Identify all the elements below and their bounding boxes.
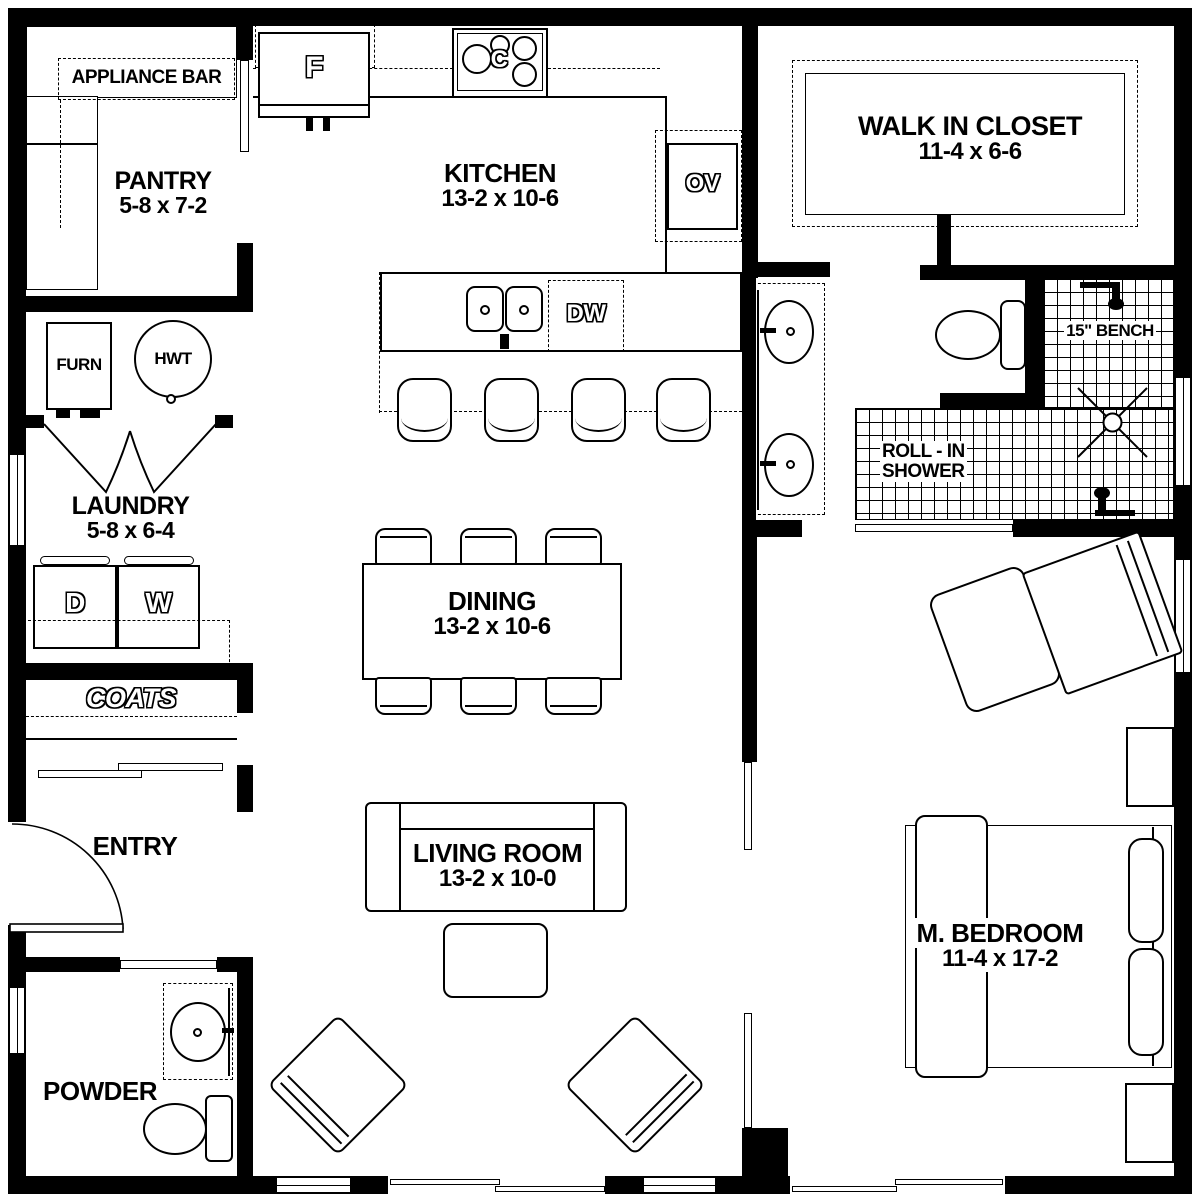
laundry-label: LAUNDRY 5-8 x 6-4 — [48, 493, 213, 543]
dryer-label: D — [33, 588, 117, 617]
shelf-dashed — [60, 100, 61, 228]
wall — [237, 663, 253, 713]
bar-stool — [397, 378, 452, 442]
wall — [8, 296, 253, 312]
sink-drain — [193, 1028, 202, 1037]
wall — [1025, 278, 1043, 408]
dryer-lid — [40, 556, 110, 565]
toilet-bowl — [935, 310, 1001, 360]
bypass-door — [118, 763, 223, 771]
chair-cushion-line — [632, 1081, 694, 1143]
bench-text: 15" BENCH — [1064, 321, 1156, 340]
roll-in-shower-label: ROLL - IN SHOWER — [880, 442, 1040, 482]
window — [1174, 560, 1192, 672]
dining-chair — [545, 528, 602, 566]
fridge-foot — [323, 118, 330, 131]
entry-door-opening — [8, 822, 26, 925]
coats-letters: COATS — [86, 683, 176, 713]
pocket-door — [744, 762, 752, 850]
sofa-back — [401, 828, 593, 830]
pocket-door — [240, 60, 249, 152]
furnace-letters: FURN — [56, 355, 101, 374]
room-name: POWDER — [43, 1076, 157, 1106]
closet-shelf-edge — [26, 738, 237, 740]
window — [277, 1176, 350, 1194]
wall — [237, 26, 253, 60]
coffee-table — [443, 923, 548, 998]
master-bedroom-label: M. BEDROOM 11-4 x 17-2 — [895, 920, 1105, 972]
pocket-door — [120, 960, 217, 969]
wall — [742, 520, 802, 537]
washer-letter: W — [146, 587, 172, 618]
room-name: LIVING ROOM — [400, 840, 595, 867]
fridge-letter: F — [305, 51, 323, 84]
water-heater-label: HWT — [134, 350, 212, 368]
laundry-counter-dashed — [23, 620, 230, 667]
washer-label: W — [117, 588, 200, 617]
wall — [237, 957, 253, 1178]
sink-drain — [786, 460, 795, 469]
wall — [742, 26, 758, 278]
sink-drain — [480, 305, 490, 315]
armchair — [267, 1014, 408, 1155]
room-dims: 5-8 x 7-2 — [83, 194, 243, 218]
dining-chair — [545, 677, 602, 715]
nightstand — [1125, 1083, 1174, 1163]
sink-faucet — [760, 328, 776, 333]
sink-faucet — [222, 1028, 234, 1033]
dining-chair — [375, 528, 432, 566]
wall — [742, 537, 757, 762]
room-name: LAUNDRY — [48, 493, 213, 519]
vanity-edge — [757, 290, 759, 510]
room-dims: 5-8 x 6-4 — [48, 519, 213, 543]
sink-drain — [786, 327, 795, 336]
toilet-tank — [1000, 300, 1026, 370]
pocket-door — [744, 1013, 752, 1128]
dining-chair — [375, 677, 432, 715]
walk-in-closet-label: WALK IN CLOSET 11-4 x 6-6 — [840, 112, 1100, 165]
bifold-door — [44, 424, 216, 492]
sliding-door — [495, 1186, 605, 1192]
window — [644, 1176, 715, 1194]
closet-rod-dashed — [26, 716, 237, 717]
shower-curb — [855, 524, 1013, 532]
bar-stool — [571, 378, 626, 442]
sink-faucet — [500, 334, 509, 349]
appliance-bar-text: APPLIANCE BAR — [72, 67, 222, 88]
shower-bench-tile — [1043, 278, 1174, 408]
pillow — [1128, 838, 1164, 943]
room-name: PANTRY — [83, 168, 243, 194]
window — [8, 988, 26, 1053]
fridge-foot — [306, 118, 313, 131]
appliance-bar-label: APPLIANCE BAR — [58, 68, 235, 88]
furnace-foot — [56, 410, 70, 418]
armchair — [564, 1014, 705, 1155]
entry-label: ENTRY — [55, 833, 215, 860]
sliding-door — [390, 1179, 500, 1185]
wall — [742, 262, 830, 277]
wall — [8, 957, 120, 972]
shower-head — [1094, 487, 1110, 499]
wall — [742, 1128, 788, 1178]
wall — [237, 243, 253, 298]
bypass-door — [38, 770, 142, 778]
dining-chair — [460, 528, 517, 566]
dishwasher-label: DW — [548, 302, 624, 327]
toilet-bowl — [143, 1103, 207, 1155]
toilet-tank — [205, 1095, 233, 1162]
entry-door-leaf — [10, 924, 123, 932]
kitchen-label: KITCHEN 13-2 x 10-6 — [410, 160, 590, 212]
island-overhang-dashed — [379, 272, 380, 413]
room-name: M. BEDROOM — [895, 920, 1105, 947]
sliding-door — [895, 1179, 1003, 1185]
fridge-seam — [258, 104, 370, 106]
burner — [512, 36, 537, 61]
nightstand — [1126, 727, 1174, 807]
counter-divider — [26, 143, 98, 145]
wall — [237, 765, 253, 812]
dining-label: DINING 13-2 x 10-6 — [407, 588, 577, 640]
bar-stool — [656, 378, 711, 442]
shower-text-1: ROLL - IN — [880, 441, 967, 462]
shower-text-2: SHOWER — [880, 461, 967, 482]
water-heater-letters: HWT — [154, 349, 191, 368]
cooktop-letter: C — [491, 46, 508, 73]
chair-back-line — [1116, 545, 1158, 657]
room-name: KITCHEN — [410, 160, 590, 187]
room-dims: 11-4 x 17-2 — [895, 947, 1105, 972]
powder-label: POWDER — [30, 1078, 170, 1105]
oven-label: OV — [667, 172, 738, 197]
sink-drain — [519, 305, 529, 315]
oven-letters: OV — [686, 170, 720, 197]
upper-cabinet-dashed — [548, 68, 660, 69]
bar-stool — [484, 378, 539, 442]
wall-top — [8, 8, 1192, 26]
shower-head — [1098, 498, 1106, 511]
pillow — [1128, 948, 1164, 1056]
sink-faucet — [760, 461, 776, 466]
washer-lid — [124, 556, 194, 565]
burner — [512, 62, 537, 87]
chair-cushion-line — [625, 1074, 687, 1136]
door-stub — [26, 415, 44, 428]
room-name: ENTRY — [93, 831, 178, 861]
room-dims: 11-4 x 6-6 — [840, 140, 1100, 165]
bench-label: 15" BENCH — [1050, 322, 1170, 340]
dishwasher-letters: DW — [567, 300, 606, 327]
room-name: WALK IN CLOSET — [856, 112, 1084, 140]
dining-chair — [460, 677, 517, 715]
room-name: DINING — [407, 588, 577, 615]
floor-plan: APPLIANCE BAR PANTRY 5-8 x 7-2 F C OV KI… — [0, 0, 1200, 1200]
chair-cushion-line — [287, 1075, 349, 1137]
door-stub — [215, 415, 233, 428]
pantry-label: PANTRY 5-8 x 7-2 — [83, 168, 243, 218]
wall — [1013, 520, 1174, 537]
chair-cushion-line — [280, 1082, 342, 1144]
furnace-label: FURN — [46, 356, 112, 374]
coats-label: COATS — [60, 684, 202, 712]
wall — [940, 393, 1043, 408]
living-room-label: LIVING ROOM 13-2 x 10-0 — [400, 840, 595, 892]
room-dims: 13-2 x 10-0 — [400, 867, 595, 892]
cooktop-label: C — [486, 48, 512, 73]
furnace-foot — [80, 410, 100, 418]
room-dims: 13-2 x 10-6 — [407, 615, 577, 640]
water-heater-valve — [166, 394, 176, 404]
shower-head — [1108, 298, 1124, 310]
window — [8, 455, 26, 545]
window — [1174, 378, 1192, 485]
room-dims: 13-2 x 10-6 — [410, 187, 590, 212]
dryer-letter: D — [65, 587, 85, 618]
sliding-door — [792, 1186, 897, 1192]
fridge-label: F — [258, 52, 370, 83]
